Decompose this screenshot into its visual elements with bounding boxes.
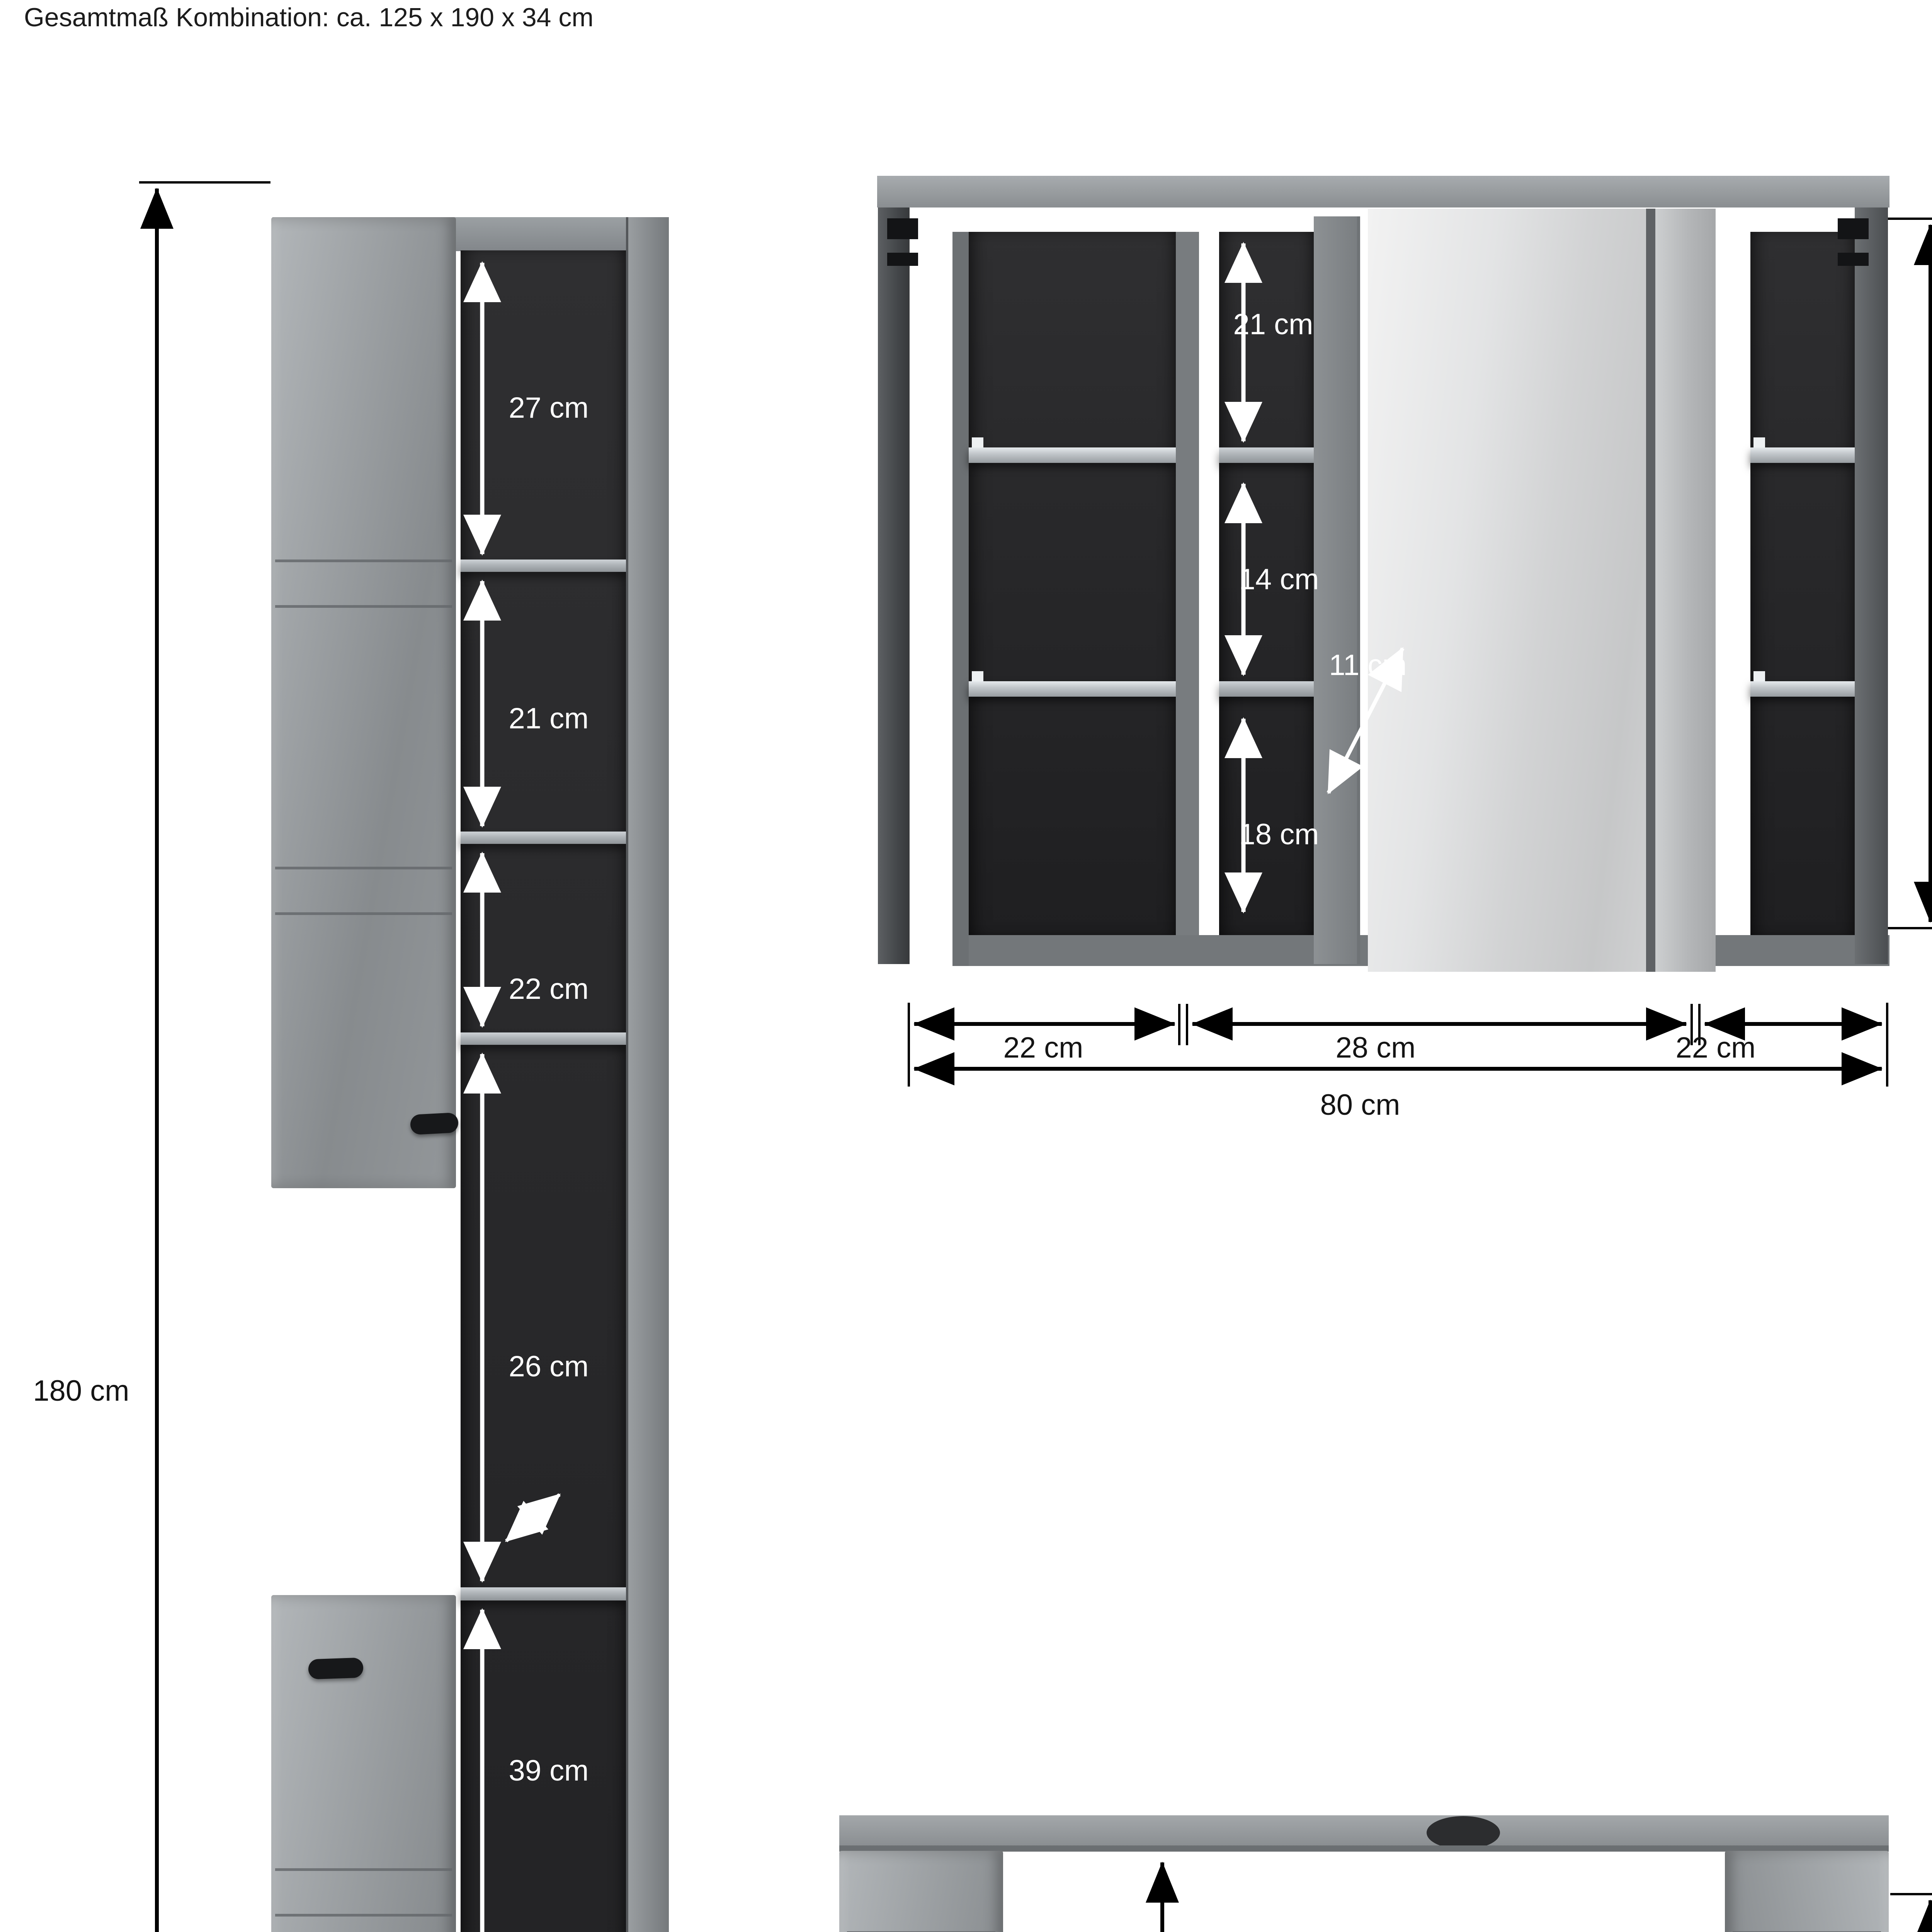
dim-label-tall-compartment: 39 cm (471, 1750, 626, 1792)
dim-label-mirror-section-width: 28 cm (1298, 1027, 1453, 1069)
tall-cabinet-dimension-lines (139, 182, 664, 1932)
dim-label-tall-total-height: 180 cm (15, 1370, 147, 1412)
dim-label-tall-compartment: 21 cm (471, 697, 626, 740)
depth-arrow-icon (506, 1495, 560, 1541)
dim-label-tall-compartment: 27 cm (471, 387, 626, 429)
tall-cabinet-inner-dimension-lines (482, 263, 560, 1932)
dim-label-mirror-total-width: 80 cm (1283, 1084, 1437, 1126)
dim-label-mirror-total-height: 60 cm (1917, 587, 1932, 630)
dim-label-tall-compartment: 22 cm (471, 968, 626, 1010)
dim-label-mirror-section-width: 22 cm (966, 1027, 1121, 1069)
dim-label-tall-compartment: 26 cm (471, 1345, 626, 1388)
dim-label-mirror-section-width: 22 cm (1638, 1027, 1793, 1069)
dim-label-mirror-compartment: 14 cm (1202, 558, 1356, 601)
dimension-lines-layer (0, 0, 1932, 1932)
dim-label-mirror-depth: 11 cm (1291, 644, 1445, 687)
dim-label-mirror-compartment: 18 cm (1202, 813, 1356, 856)
dim-label-mirror-compartment: 21 cm (1196, 303, 1350, 346)
diagram-canvas: Gesamtmaß Kombination: ca. 125 x 190 x 3… (0, 0, 1932, 1932)
sink-cabinet-dimension-lines (841, 1862, 1932, 1932)
